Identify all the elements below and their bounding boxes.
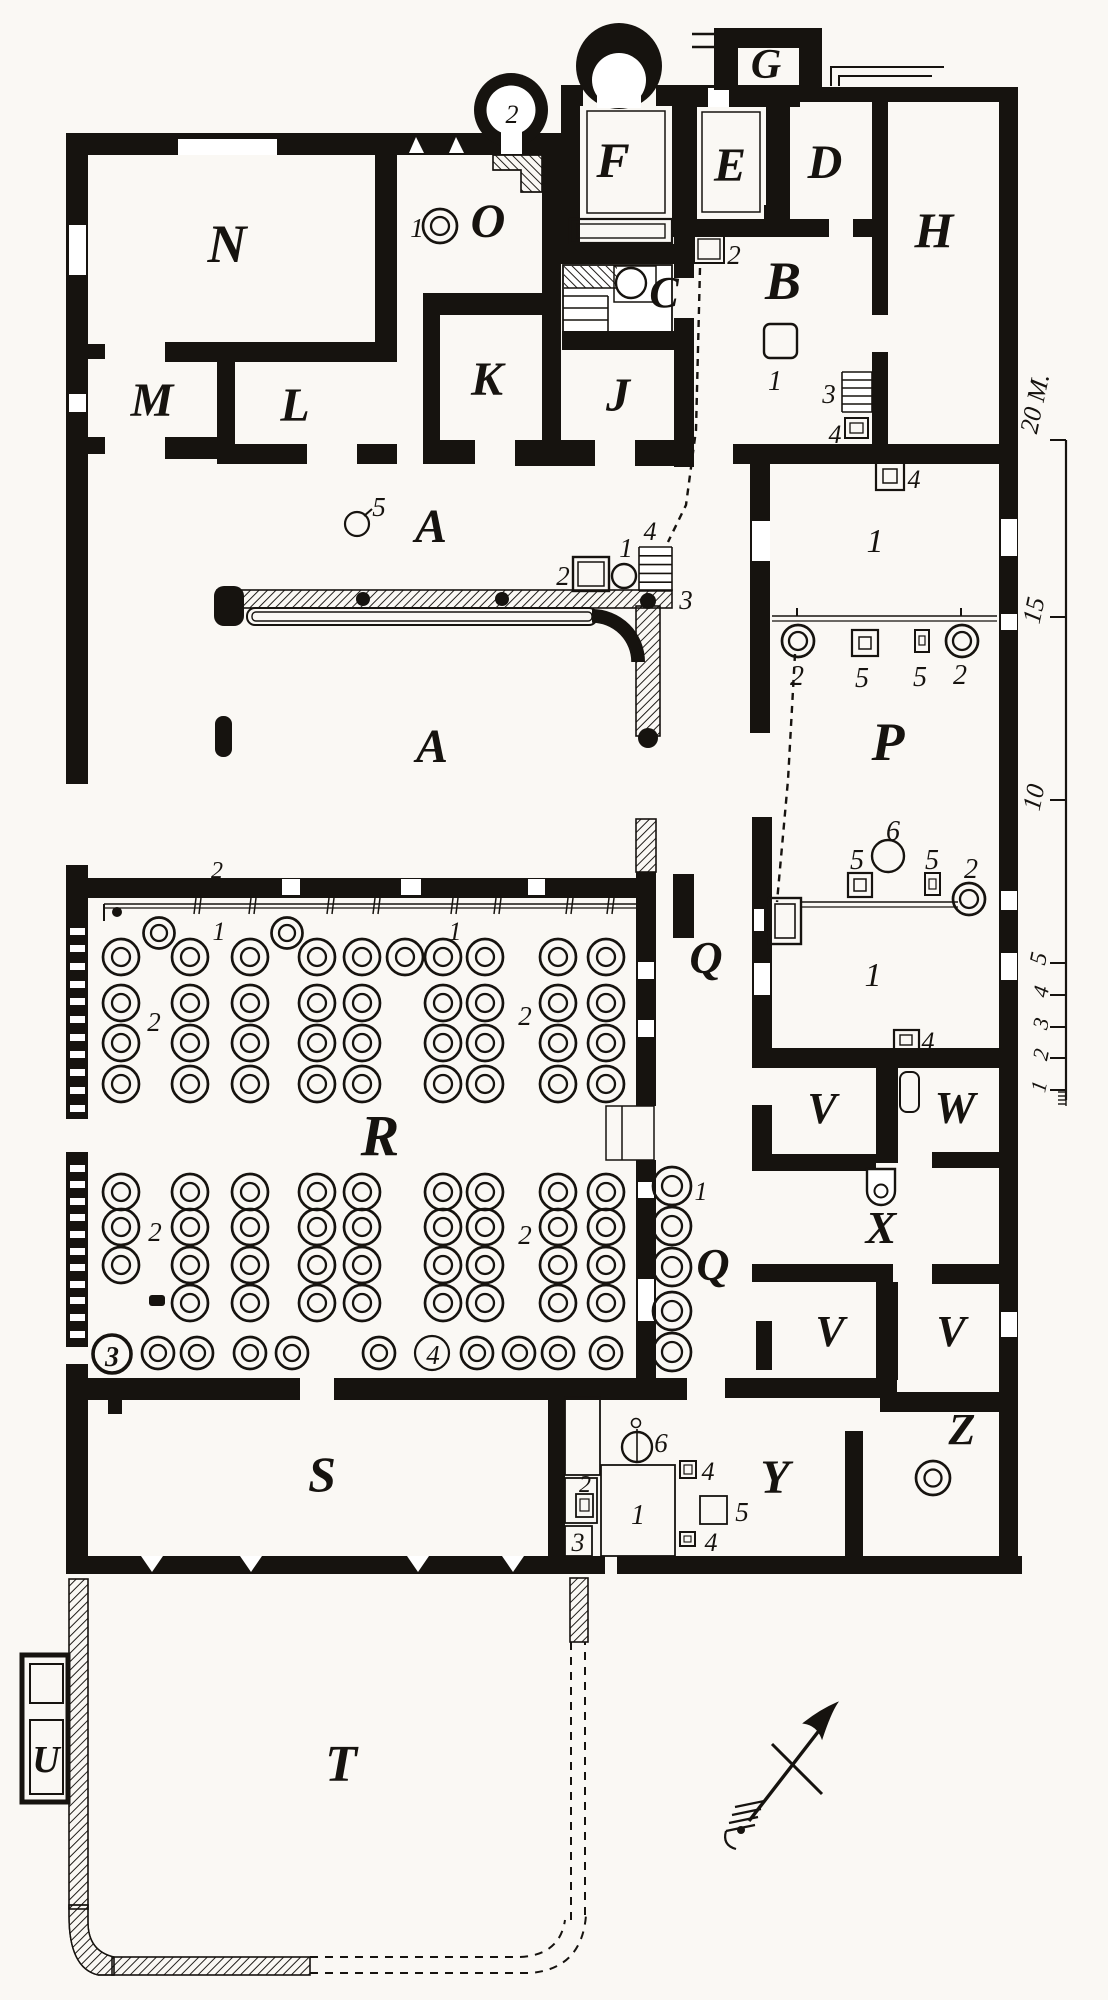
svg-text:5: 5 bbox=[855, 663, 869, 694]
svg-text:1: 1 bbox=[867, 523, 884, 560]
svg-text:W: W bbox=[935, 1082, 979, 1133]
svg-text:1: 1 bbox=[865, 957, 882, 994]
svg-text:3: 3 bbox=[821, 379, 836, 409]
svg-text:B: B bbox=[764, 251, 801, 311]
svg-text:J: J bbox=[605, 369, 632, 422]
svg-text:M: M bbox=[130, 374, 176, 427]
svg-text:5: 5 bbox=[925, 845, 939, 876]
svg-text:1: 1 bbox=[695, 1177, 708, 1206]
svg-text:V: V bbox=[815, 1307, 848, 1356]
svg-text:K: K bbox=[470, 353, 506, 406]
svg-text:4: 4 bbox=[705, 1528, 718, 1557]
svg-text:5: 5 bbox=[850, 845, 864, 876]
svg-text:A: A bbox=[412, 500, 447, 553]
svg-text:F: F bbox=[595, 132, 629, 188]
svg-text:3: 3 bbox=[571, 1528, 585, 1557]
svg-text:4: 4 bbox=[908, 465, 921, 494]
svg-text:1: 1 bbox=[410, 213, 424, 243]
svg-text:2: 2 bbox=[506, 100, 519, 129]
svg-text:L: L bbox=[279, 379, 309, 432]
svg-text:H: H bbox=[914, 202, 956, 258]
svg-text:4: 4 bbox=[702, 1457, 715, 1486]
svg-text:5: 5 bbox=[372, 492, 386, 522]
svg-text:G: G bbox=[751, 42, 781, 88]
svg-text:P: P bbox=[871, 712, 906, 772]
svg-text:4: 4 bbox=[426, 1340, 440, 1370]
svg-text:Z: Z bbox=[948, 1405, 976, 1454]
svg-text:A: A bbox=[413, 720, 448, 773]
svg-text:5: 5 bbox=[913, 662, 927, 693]
svg-text:T: T bbox=[325, 1736, 359, 1793]
svg-text:2: 2 bbox=[727, 240, 741, 270]
svg-text:2: 2 bbox=[953, 660, 967, 691]
svg-text:Q: Q bbox=[689, 932, 722, 983]
svg-text:6: 6 bbox=[654, 1428, 668, 1458]
svg-text:1: 1 bbox=[619, 533, 633, 563]
svg-text:U: U bbox=[32, 1739, 62, 1781]
svg-text:2: 2 bbox=[790, 661, 804, 692]
svg-text:2: 2 bbox=[518, 1001, 532, 1031]
svg-text:1: 1 bbox=[213, 917, 226, 946]
svg-text:N: N bbox=[207, 214, 249, 274]
svg-text:R: R bbox=[360, 1103, 400, 1168]
svg-text:2: 2 bbox=[148, 1217, 162, 1247]
svg-text:Y: Y bbox=[760, 1451, 793, 1504]
svg-text:S: S bbox=[308, 1446, 336, 1502]
svg-text:2: 2 bbox=[964, 854, 978, 885]
svg-text:1: 1 bbox=[768, 366, 782, 397]
svg-text:D: D bbox=[807, 136, 843, 189]
svg-text:3: 3 bbox=[678, 585, 693, 615]
svg-text:O: O bbox=[471, 195, 506, 248]
svg-text:6: 6 bbox=[886, 816, 900, 847]
svg-text:2: 2 bbox=[579, 1472, 591, 1498]
svg-text:2: 2 bbox=[518, 1220, 532, 1250]
svg-text:Q: Q bbox=[696, 1239, 729, 1290]
svg-text:1: 1 bbox=[631, 1500, 645, 1531]
svg-text:2: 2 bbox=[556, 561, 570, 591]
svg-text:3: 3 bbox=[104, 1342, 119, 1373]
svg-text:1: 1 bbox=[449, 917, 462, 946]
svg-text:5: 5 bbox=[735, 1497, 749, 1527]
svg-text:V: V bbox=[807, 1084, 840, 1133]
svg-text:2: 2 bbox=[211, 858, 223, 884]
svg-text:2: 2 bbox=[147, 1007, 161, 1037]
svg-text:V: V bbox=[936, 1307, 969, 1356]
svg-text:4: 4 bbox=[644, 517, 657, 546]
svg-text:X: X bbox=[864, 1202, 898, 1253]
svg-text:E: E bbox=[713, 139, 746, 192]
